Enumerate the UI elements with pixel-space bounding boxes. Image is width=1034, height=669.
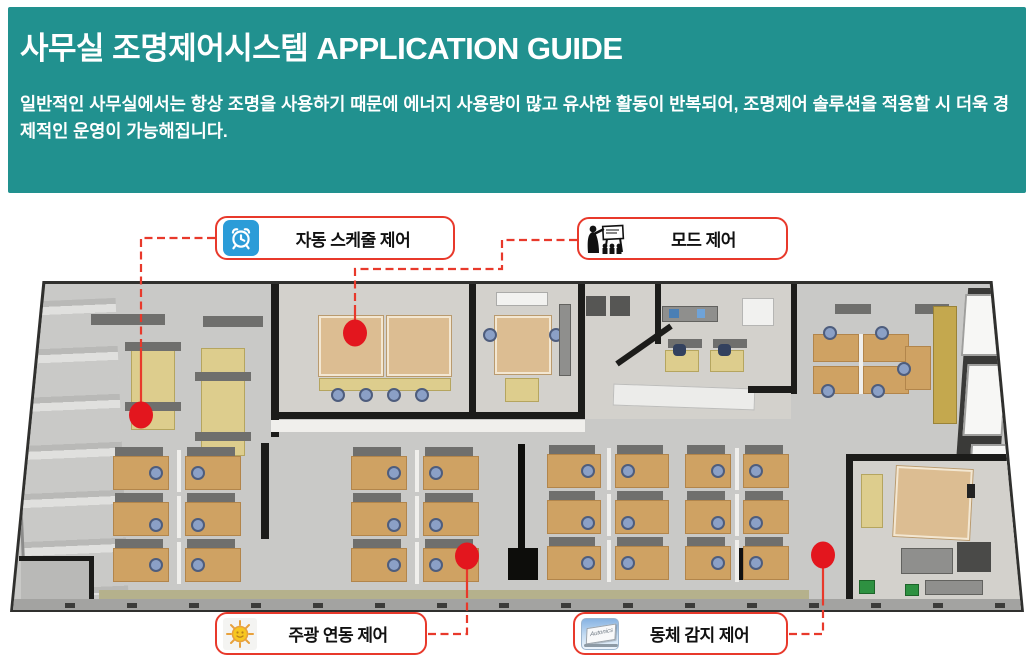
callout-label: 동체 감지 제어 [619,621,780,646]
shelf-slat [745,537,783,546]
chair [621,464,635,478]
shelf-slat [115,493,163,502]
chair [621,516,635,530]
page-description: 일반적인 사무실에서는 항상 조명을 사용하기 때문에 에너지 사용량이 많고 … [20,91,1020,145]
sensor-device: Autonics [586,623,616,644]
desk [743,500,789,534]
callout-motion-control: Autonics 동체 감지 제어 [573,612,788,655]
chair [429,518,443,532]
shelf-slat [617,537,663,546]
shelf-slat [425,493,473,502]
application-guide-page: 사무실 조명제어시스템 APPLICATION GUIDE 일반적인 사무실에서… [0,0,1034,669]
shelf-slat [353,493,401,502]
shelf-slat [425,539,473,548]
baseboard [99,590,809,599]
presentation-icon [585,223,627,255]
chair [429,558,443,572]
chair [149,518,163,532]
shelf-slat [549,491,595,500]
chair [749,464,763,478]
chair [191,518,205,532]
callout-label: 주광 연동 제어 [257,621,419,646]
desk-partition [607,494,611,536]
desk-partition [607,540,611,582]
desk-clusters [13,284,1027,615]
chair [749,516,763,530]
desk-partition [415,496,419,538]
shelf-slat [187,539,235,548]
shelf-slat [687,537,725,546]
callout-daylight-control: 주광 연동 제어 [215,612,427,655]
desk-partition [735,448,739,490]
shelf-slat [115,539,163,548]
chair [711,464,725,478]
floorplan-floor [13,284,1021,610]
desk-partition [177,542,181,584]
callout-schedule-control: 자동 스케줄 제어 [215,216,455,260]
shelf-slat [187,447,235,456]
sensor-brand-text: Autonics [590,627,613,638]
chair [387,518,401,532]
desk-partition [177,450,181,492]
shelf-slat [617,445,663,454]
shelf-slat [115,447,163,456]
callout-mode-control: 모드 제어 [577,217,788,260]
shelf-slat [617,491,663,500]
chair [429,466,443,480]
header-banner: 사무실 조명제어시스템 APPLICATION GUIDE 일반적인 사무실에서… [8,7,1026,193]
desk-partition [415,542,419,584]
chair [581,556,595,570]
chair [387,558,401,572]
shelf-slat [353,539,401,548]
chair [191,558,205,572]
alarm-clock-icon [223,220,259,256]
sensor-base [584,644,618,647]
motion-sensor-icon: Autonics [581,618,619,650]
shelf-slat [187,493,235,502]
page-title: 사무실 조명제어시스템 APPLICATION GUIDE [20,31,1012,67]
shelf-slat [745,491,783,500]
desk-partition [415,450,419,492]
shelf-slat [687,445,725,454]
chair [387,466,401,480]
shelf-slat [425,447,473,456]
chair [581,464,595,478]
office-floorplan [10,281,1024,612]
chair [149,466,163,480]
chair [711,556,725,570]
chair [749,556,763,570]
shelf-slat [549,445,595,454]
callout-label: 자동 스케줄 제어 [259,226,447,251]
desk-partition [177,496,181,538]
desk-partition [735,494,739,536]
sun-icon [223,618,257,650]
desk-partition [607,448,611,490]
desk-partition [735,540,739,582]
shelf-slat [745,445,783,454]
shelf-slat [353,447,401,456]
chair [711,516,725,530]
callout-label: 모드 제어 [627,226,780,251]
chair [191,466,205,480]
chair [581,516,595,530]
desk [685,500,731,534]
shelf-slat [549,537,595,546]
chair [149,558,163,572]
shelf-slat [687,491,725,500]
chair [621,556,635,570]
